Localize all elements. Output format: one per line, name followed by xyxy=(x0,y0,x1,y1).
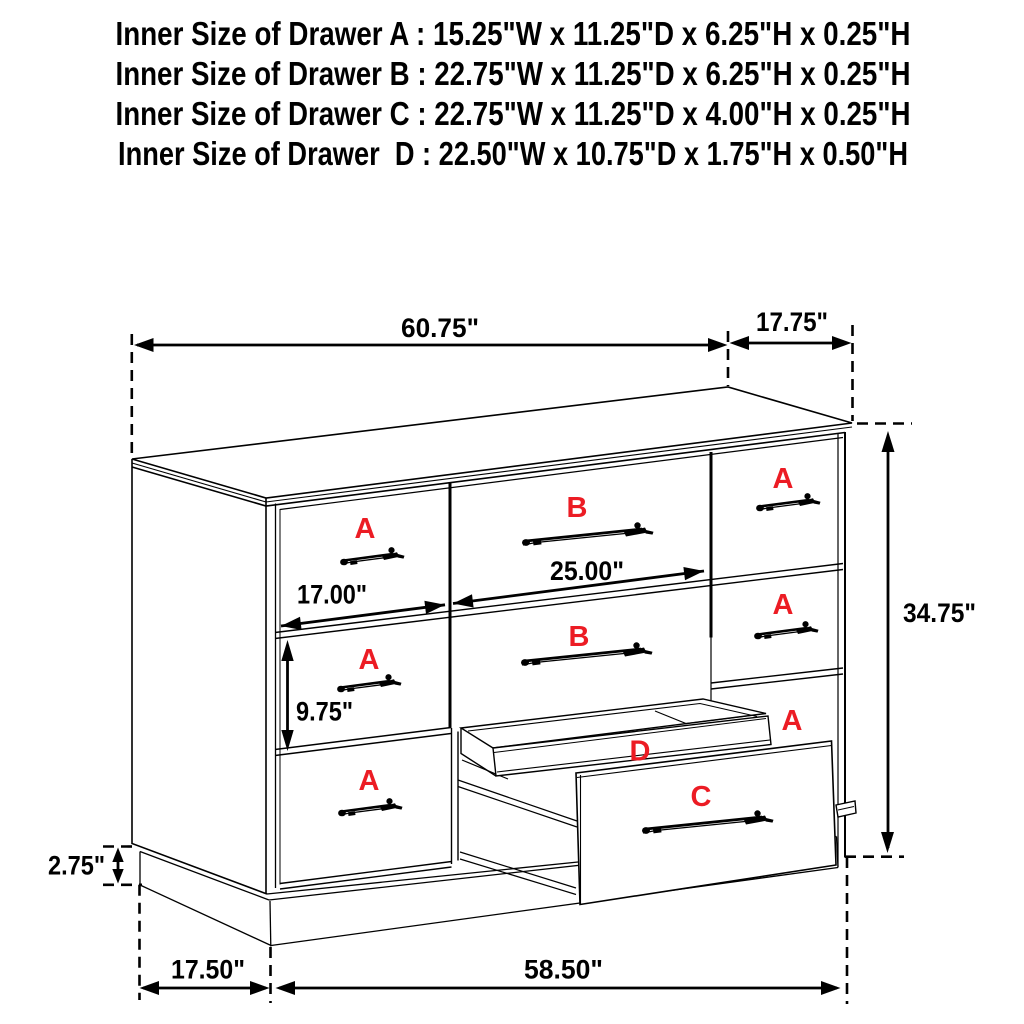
svg-text:9.75": 9.75" xyxy=(296,697,353,727)
svg-text:A: A xyxy=(355,513,376,545)
svg-text:Inner Size of Drawer D : 22.5: Inner Size of Drawer D : 22.50"W x 10.75… xyxy=(118,135,908,172)
svg-text:B: B xyxy=(567,492,588,524)
svg-text:A: A xyxy=(359,644,380,676)
svg-text:Inner Size of Drawer C : 22.75: Inner Size of Drawer C : 22.75"W x 11.25… xyxy=(116,95,911,132)
svg-text:A: A xyxy=(359,765,380,797)
svg-text:17.75": 17.75" xyxy=(756,307,828,337)
svg-text:60.75": 60.75" xyxy=(401,313,479,343)
svg-text:2.75": 2.75" xyxy=(48,851,105,881)
svg-text:C: C xyxy=(691,781,712,813)
svg-text:25.00": 25.00" xyxy=(550,556,624,586)
svg-text:34.75": 34.75" xyxy=(903,598,976,628)
svg-text:Inner Size of Drawer B : 22.75: Inner Size of Drawer B : 22.75"W x 11.25… xyxy=(116,55,911,92)
svg-text:17.00": 17.00" xyxy=(297,580,367,610)
svg-text:D: D xyxy=(630,736,651,768)
svg-text:A: A xyxy=(773,463,794,495)
svg-text:B: B xyxy=(569,621,590,653)
svg-text:A: A xyxy=(782,705,803,737)
svg-text:A: A xyxy=(773,589,794,621)
svg-text:58.50": 58.50" xyxy=(524,955,603,985)
svg-text:17.50": 17.50" xyxy=(171,955,245,985)
svg-text:Inner Size of Drawer A : 15.25: Inner Size of Drawer A : 15.25"W x 11.25… xyxy=(116,15,911,52)
